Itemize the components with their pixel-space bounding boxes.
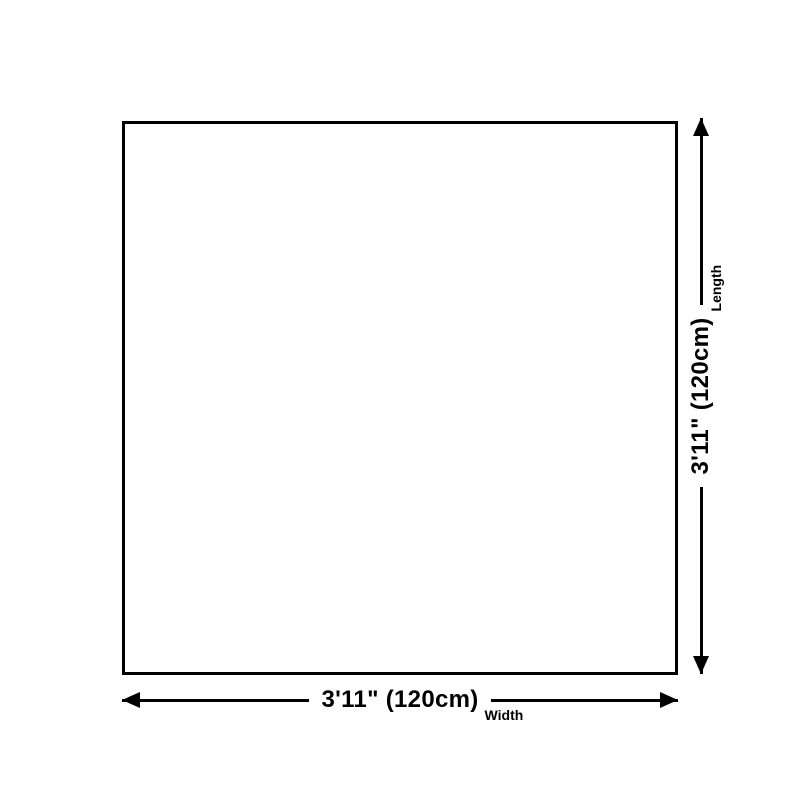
width-dimension: 3'11" (120cm) Width: [122, 686, 678, 714]
width-dimension-value: 3'11" (120cm): [321, 686, 478, 713]
product-outline: [122, 121, 678, 675]
width-arrow-line-left: [122, 699, 309, 702]
length-arrow-line-bottom: [700, 487, 703, 674]
arrow-down-icon: [693, 656, 709, 674]
dimension-diagram: 3'11" (120cm) Length 3'11" (120cm) Width: [0, 0, 800, 800]
width-dimension-label: Width: [485, 707, 524, 723]
length-arrow-line-top: [700, 118, 703, 305]
width-dimension-text: 3'11" (120cm) Width: [309, 686, 490, 714]
length-dimension-text: 3'11" (120cm) Length: [687, 305, 715, 486]
length-dimension-label: Length: [708, 265, 724, 312]
arrow-left-icon: [122, 692, 140, 708]
arrow-right-icon: [660, 692, 678, 708]
length-dimension: 3'11" (120cm) Length: [687, 118, 715, 674]
arrow-up-icon: [693, 118, 709, 136]
width-arrow-line-right: [491, 699, 678, 702]
length-dimension-value: 3'11" (120cm): [687, 317, 714, 474]
